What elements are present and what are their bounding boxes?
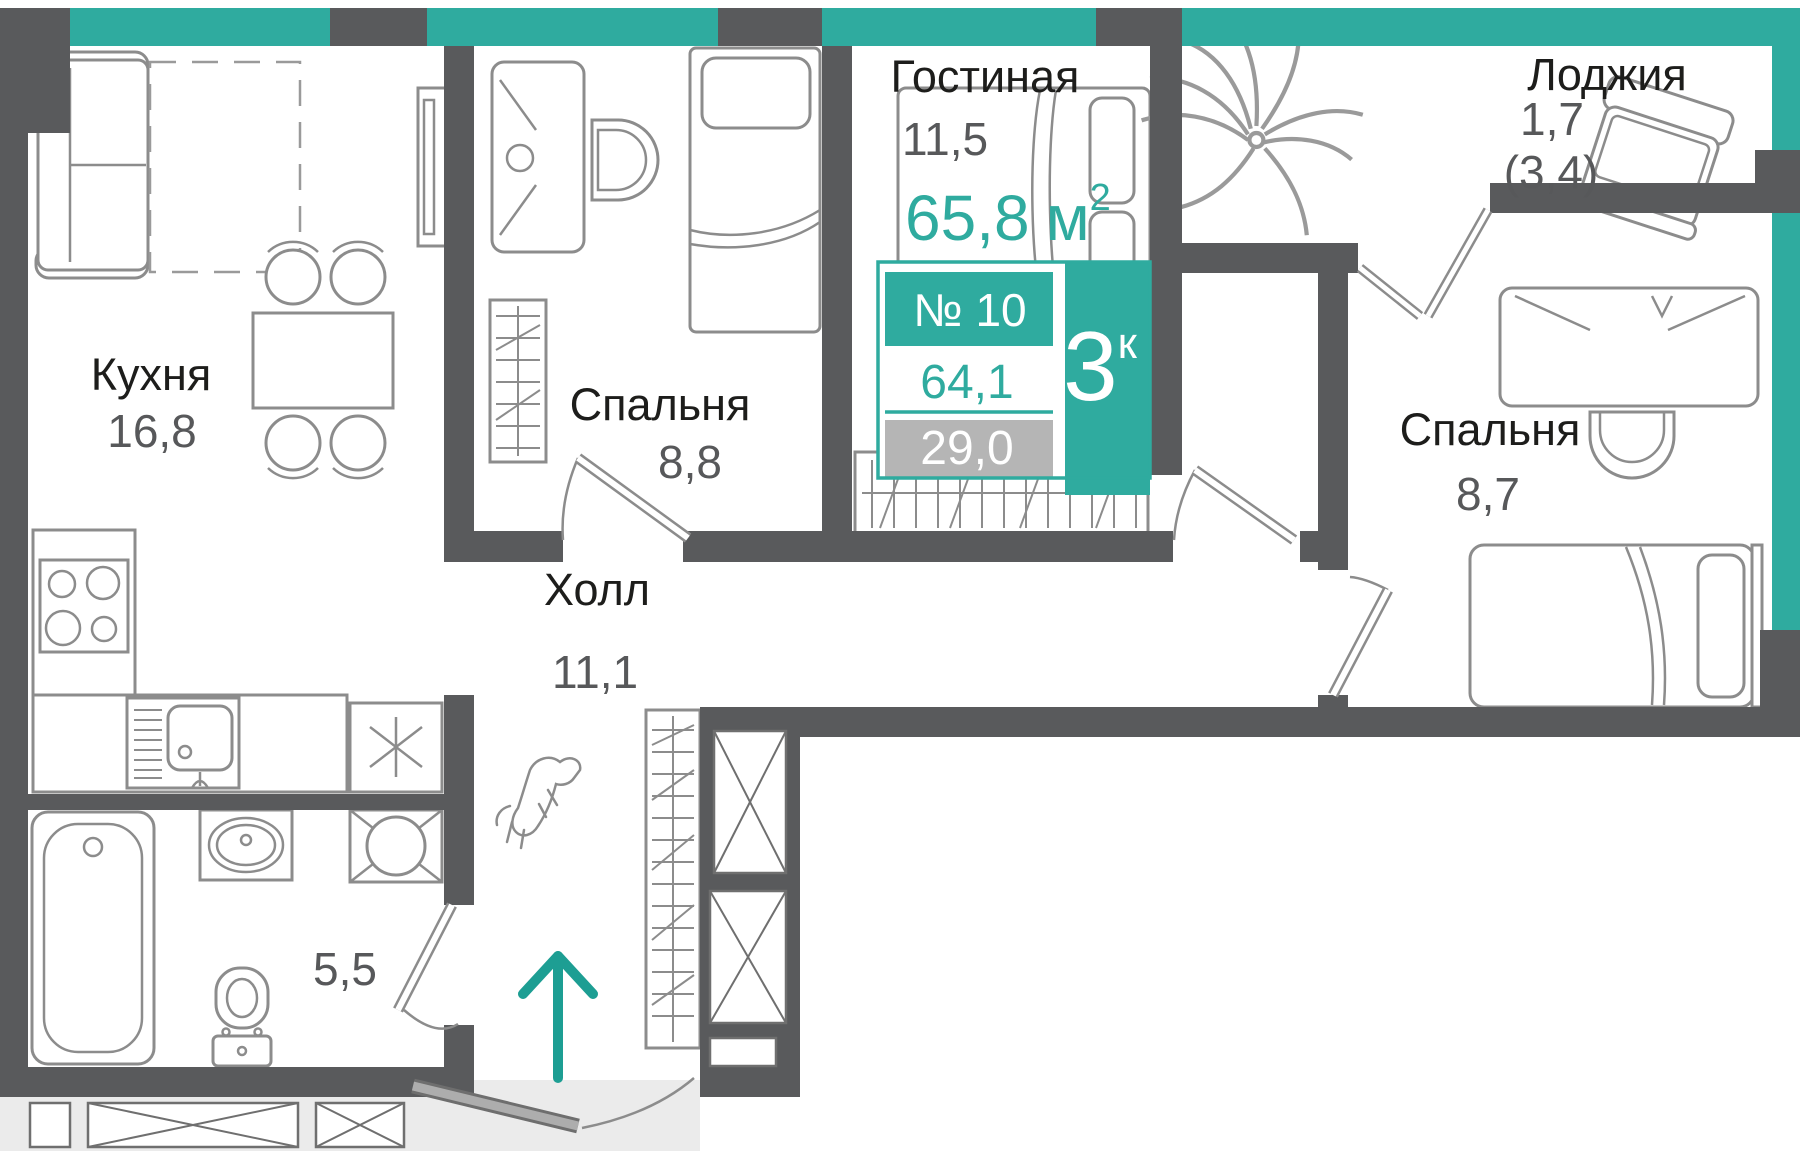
kitchen-label: Кухня — [91, 349, 211, 400]
stool-icon — [331, 416, 385, 470]
badge-rooms-value: 3 — [1063, 311, 1118, 421]
washing-machine-icon — [350, 810, 442, 882]
bathroom-area: 5,5 — [313, 943, 377, 995]
kitchen-area: 16,8 — [107, 405, 197, 457]
window-strip — [822, 8, 1096, 46]
chair-icon — [1590, 412, 1674, 478]
stool-icon — [266, 250, 320, 304]
total-area-value: 65,8 — [905, 182, 1030, 254]
kitchen-sink-icon — [127, 698, 239, 788]
tv-icon — [418, 88, 446, 246]
bed-icon — [1470, 545, 1762, 707]
window-strip — [427, 8, 718, 46]
bedroom2-area: 8,7 — [1456, 468, 1520, 520]
apartment-badge: № 10 3к 64,1 29,0 — [878, 262, 1150, 495]
toilet-icon — [213, 968, 271, 1066]
stove-icon — [40, 560, 128, 652]
hall-label: Холл — [544, 564, 650, 615]
loggia-area-full: (3,4) — [1504, 146, 1599, 198]
total-area: 65,8м2 — [905, 177, 1111, 254]
window-strip — [70, 8, 330, 46]
stool-icon — [331, 250, 385, 304]
floor-plan-svg: Кухня 16,8 Спальня 8,8 Гостиная 11,5 Лод… — [0, 0, 1800, 1151]
bedroom1-label: Спальня — [570, 379, 751, 430]
desk-icon — [1500, 288, 1758, 406]
floor-plan: Кухня 16,8 Спальня 8,8 Гостиная 11,5 Лод… — [0, 0, 1800, 1151]
total-area-sup: 2 — [1090, 177, 1111, 219]
loggia-area: 1,7 — [1520, 93, 1584, 145]
window-strip — [1182, 8, 1800, 46]
dashed-zone — [150, 62, 300, 272]
wardrobe-icon — [646, 710, 700, 1048]
bathtub-icon — [32, 812, 154, 1064]
hall-area: 11,1 — [552, 646, 638, 698]
living-label: Гостиная — [891, 51, 1080, 102]
badge-area-other: 29,0 — [920, 422, 1013, 475]
entrance-arrow-icon — [523, 956, 593, 1078]
wardrobe-icon — [490, 300, 546, 462]
badge-area-living: 64,1 — [920, 356, 1013, 409]
stool-icon — [266, 416, 320, 470]
bedroom2-label: Спальня — [1400, 404, 1581, 455]
living-area: 11,5 — [902, 113, 988, 165]
washbasin-icon — [200, 810, 292, 880]
bed-icon — [690, 48, 820, 332]
badge-rooms-sup: к — [1118, 319, 1138, 368]
bedroom1-area: 8,8 — [658, 436, 722, 488]
badge-number: № 10 — [913, 284, 1026, 336]
total-area-unit: м — [1046, 182, 1090, 254]
dog-icon — [497, 758, 581, 848]
chair-icon — [592, 120, 658, 200]
window-strip — [1772, 46, 1800, 630]
desk-icon — [492, 62, 584, 252]
dining-table-icon — [253, 242, 393, 478]
fridge-icon — [350, 703, 442, 792]
